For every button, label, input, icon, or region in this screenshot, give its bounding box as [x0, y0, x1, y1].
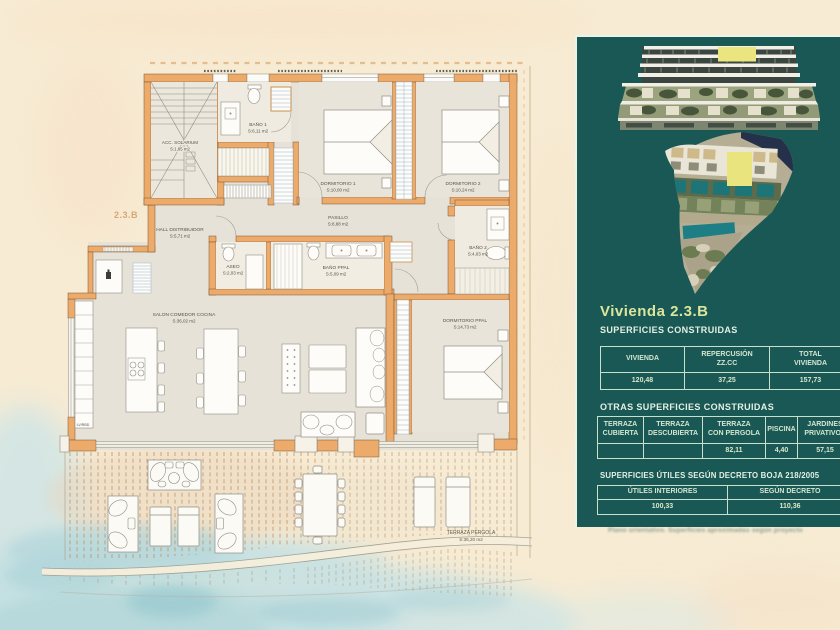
svg-text:S:14,73 m2: S:14,73 m2	[453, 325, 477, 330]
svg-text:S:8,88 m2: S:8,88 m2	[328, 222, 349, 227]
svg-text:S:2,03 m2: S:2,03 m2	[223, 271, 244, 276]
svg-text:S:35,20 m2: S:35,20 m2	[459, 537, 483, 542]
svg-text:BAÑO 2: BAÑO 2	[469, 244, 487, 251]
svg-text:SALON COMEDOR COCINA: SALON COMEDOR COCINA	[153, 312, 216, 318]
svg-text:LV/RBD: LV/RBD	[77, 423, 90, 427]
svg-text:DORMITORIO PPAL: DORMITORIO PPAL	[443, 318, 488, 324]
svg-text:S:10,00 m2: S:10,00 m2	[326, 188, 350, 193]
svg-text:S:36,02 m2: S:36,02 m2	[172, 319, 196, 324]
svg-text:BAÑO PPAL: BAÑO PPAL	[323, 264, 350, 271]
svg-text:S:6,11 m2: S:6,11 m2	[248, 129, 269, 134]
svg-text:2.3.B: 2.3.B	[114, 210, 138, 220]
svg-text:ACC. SOLARIUM: ACC. SOLARIUM	[162, 140, 198, 145]
svg-text:S:4,03 m2: S:4,03 m2	[468, 252, 489, 257]
svg-text:BAÑO 1: BAÑO 1	[249, 121, 267, 128]
svg-text:S:5,71 m2: S:5,71 m2	[170, 234, 191, 239]
svg-text:TERRAZA PERGOLA: TERRAZA PERGOLA	[447, 530, 496, 536]
svg-text:PASILLO: PASILLO	[328, 215, 348, 221]
svg-text:ASEO: ASEO	[226, 264, 240, 270]
svg-text:S:10,24 m2: S:10,24 m2	[451, 188, 475, 193]
svg-text:DORMITORIO 2: DORMITORIO 2	[445, 181, 480, 187]
svg-text:DORMITORIO 1: DORMITORIO 1	[320, 181, 355, 187]
svg-text:HALL DISTRIBUIDOR: HALL DISTRIBUIDOR	[156, 227, 204, 233]
svg-text:S:5,09 m2: S:5,09 m2	[326, 272, 347, 277]
svg-text:S:1,85 m2: S:1,85 m2	[170, 147, 191, 152]
